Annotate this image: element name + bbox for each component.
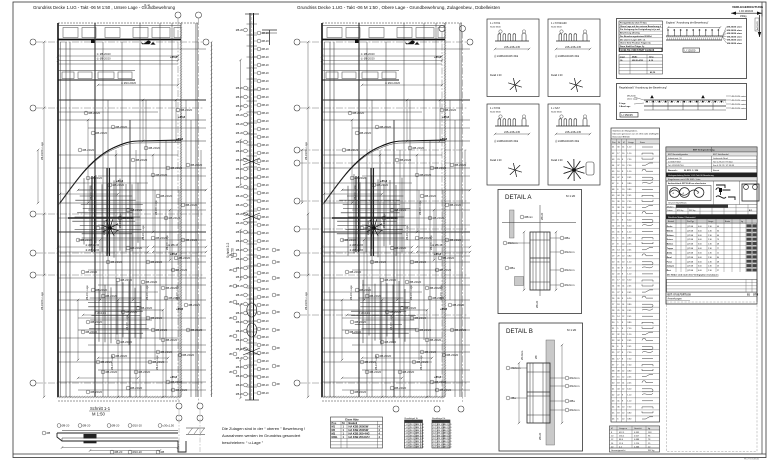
svg-text:Ø8-20/20 unten: Ø8-20/20 unten bbox=[732, 107, 747, 110]
svg-text:St: St bbox=[342, 421, 345, 425]
svg-text:06 SPG 1 / 036: 06 SPG 1 / 036 bbox=[684, 170, 699, 172]
svg-text:+85,8: +85,8 bbox=[176, 307, 184, 311]
svg-text:Ø8-20/20: Ø8-20/20 bbox=[345, 238, 357, 242]
svg-text:Ø8-20: Ø8-20 bbox=[262, 119, 270, 123]
svg-text:Ø8-20/20 u.Lage: Ø8-20/20 u.Lage bbox=[41, 291, 44, 310]
svg-text:Ø8a: Ø8a bbox=[510, 266, 516, 270]
svg-text:Ø8-20/20: Ø8-20/20 bbox=[627, 96, 637, 98]
svg-text:Länge: Länge bbox=[628, 142, 635, 144]
svg-text:Ø8-20/20: Ø8-20/20 bbox=[149, 146, 161, 150]
svg-text:Ø8-20: Ø8-20 bbox=[262, 263, 270, 267]
svg-text:Ø8-20/20: Ø8-20/20 bbox=[453, 303, 465, 307]
svg-text:Pos: Pos bbox=[332, 421, 337, 425]
svg-text:Ø8-20 1.Lage: Ø8-20 1.Lage bbox=[119, 213, 122, 228]
svg-text:Ø8-20/20: Ø8-20/20 bbox=[166, 338, 178, 342]
svg-text:1.Bew.Lage: 1.Bew.Lage bbox=[619, 106, 631, 108]
svg-text:Ø8-20/20: Ø8-20/20 bbox=[380, 125, 392, 129]
svg-text:Ø8-20/20: Ø8-20/20 bbox=[131, 246, 143, 250]
svg-text:Die Zulagen sind in der “ ober: Die Zulagen sind in der “ oberen ” Beweh… bbox=[222, 426, 305, 431]
svg-text:Ø8-20/20: Ø8-20/20 bbox=[186, 238, 198, 242]
svg-text:Q257A: Q257A bbox=[687, 229, 694, 232]
svg-text:Ø8-20: Ø8-20 bbox=[262, 383, 270, 387]
svg-text:Ø8-20: Ø8-20 bbox=[262, 215, 270, 219]
svg-text:Ø8-20: Ø8-20 bbox=[236, 104, 244, 108]
svg-text:⑦ Ø10-15: ⑦ Ø10-15 bbox=[94, 311, 106, 315]
svg-text:+85,8: +85,8 bbox=[176, 137, 184, 141]
svg-text:245+245+245: 245+245+245 bbox=[504, 130, 521, 134]
svg-text:Ø8-20: Ø8-20 bbox=[262, 127, 270, 131]
svg-text:Ø8-20/20 oben: Ø8-20/20 oben bbox=[727, 30, 743, 32]
svg-text:Ø8-20/20: Ø8-20/20 bbox=[121, 278, 133, 282]
svg-text:Ø8-20: Ø8-20 bbox=[236, 392, 244, 396]
svg-text:③ Ø10-20/20: ③ Ø10-20/20 bbox=[385, 81, 401, 85]
svg-text:Ø10-20: Ø10-20 bbox=[133, 450, 143, 454]
svg-text:Randbügel St: Randbügel St bbox=[405, 417, 419, 420]
svg-text:Ø8-20: Ø8-20 bbox=[262, 199, 270, 203]
svg-text:Ø8-20: Ø8-20 bbox=[236, 122, 244, 126]
svg-text:Ø8-20/20: Ø8-20/20 bbox=[360, 288, 372, 292]
svg-text:Ø8-20: Ø8-20 bbox=[262, 39, 270, 43]
svg-text:Ø8-20: Ø8-20 bbox=[62, 424, 70, 428]
svg-text:Ⓐ 2xØ8x100/245 4Stk: Ⓐ 2xØ8x100/245 4Stk bbox=[494, 139, 519, 143]
svg-text:Q257A: Q257A bbox=[687, 243, 694, 246]
svg-text:Ø8-20: Ø8-20 bbox=[262, 279, 270, 283]
svg-text:Ø8-20/20 u.Lage: Ø8-20/20 u.Lage bbox=[305, 141, 308, 160]
svg-text:Ø8-20: Ø8-20 bbox=[236, 149, 244, 153]
svg-text:Ø8-20: Ø8-20 bbox=[262, 79, 270, 83]
svg-text:Ø8: Ø8 bbox=[534, 355, 538, 359]
svg-text:Ø8-20/20: Ø8-20/20 bbox=[353, 111, 365, 115]
svg-text:Ø8-20 1.Lage: Ø8-20 1.Lage bbox=[166, 235, 169, 250]
svg-text:+85,8: +85,8 bbox=[178, 115, 186, 119]
svg-text:Ø8-20/20: Ø8-20/20 bbox=[455, 163, 467, 167]
svg-text:HA KSB 200-4HG: HA KSB 200-4HG bbox=[349, 431, 370, 435]
svg-text:48: 48 bbox=[717, 244, 719, 246]
svg-text:③ Ø10-20/20: ③ Ø10-20/20 bbox=[121, 81, 137, 85]
svg-text:Ø8-20/20: Ø8-20/20 bbox=[440, 388, 452, 392]
svg-text:Ø8-20: Ø8-20 bbox=[262, 63, 270, 67]
svg-text:Ø8 1.10: Ø8 1.10 bbox=[416, 433, 425, 435]
svg-text:Obere Lage auf der unteren Bew: Obere Lage auf der unteren Bewehrung d bbox=[620, 25, 662, 28]
svg-text:Pos: Pos bbox=[612, 142, 616, 144]
svg-text:M 1:20: M 1:20 bbox=[567, 328, 577, 332]
svg-text:Ø8-20: Ø8-20 bbox=[262, 223, 270, 227]
svg-text:BST Verlegeanleitung: BST Verlegeanleitung bbox=[693, 149, 715, 152]
svg-text:Wände: Wände bbox=[667, 230, 673, 232]
svg-text:Ø12mm: Ø12mm bbox=[570, 384, 581, 388]
svg-text:Ø8-20: Ø8-20 bbox=[236, 347, 244, 351]
svg-text:23: 23 bbox=[717, 266, 719, 268]
svg-text:Ø8-20/20: Ø8-20/20 bbox=[161, 350, 173, 354]
svg-text:Ø8 1.10: Ø8 1.10 bbox=[416, 427, 425, 429]
svg-text:+85,8: +85,8 bbox=[440, 137, 448, 141]
svg-text:Ø8-20/20: Ø8-20/20 bbox=[116, 354, 128, 358]
svg-text:Ø8-20/20: Ø8-20/20 bbox=[435, 166, 447, 170]
svg-text:Q257A: Q257A bbox=[687, 234, 694, 237]
svg-text:0.888: 0.888 bbox=[634, 439, 640, 441]
svg-text:Ø8-20: Ø8-20 bbox=[236, 275, 244, 279]
svg-text:Eisen Hüte: Eisen Hüte bbox=[345, 417, 359, 421]
svg-text:Ø8 1.10: Ø8 1.10 bbox=[444, 427, 453, 429]
svg-text:Q257A: Q257A bbox=[687, 265, 694, 268]
svg-text:+85,8: +85,8 bbox=[170, 252, 178, 256]
svg-text:Ø8-20 1.Lage: Ø8-20 1.Lage bbox=[146, 285, 149, 300]
svg-text:Ø8-20/20 u.Lage: Ø8-20/20 u.Lage bbox=[41, 141, 44, 160]
svg-text:Ø8: Ø8 bbox=[47, 431, 51, 435]
svg-text:Ø8-20: Ø8-20 bbox=[262, 327, 270, 331]
svg-text:Betonstahl BSt500: Betonstahl BSt500 bbox=[613, 136, 631, 139]
svg-text:Ø8-20/20 unten: Ø8-20/20 unten bbox=[732, 103, 747, 106]
svg-text:Ø8-20/20: Ø8-20/20 bbox=[395, 246, 407, 250]
svg-text:Ø8-20: Ø8-20 bbox=[540, 212, 544, 220]
svg-text:Ø8-20/20: Ø8-20/20 bbox=[403, 370, 415, 374]
svg-text:Ø8-20 1.Lage: Ø8-20 1.Lage bbox=[390, 315, 393, 330]
svg-text:Ø8-20: Ø8-20 bbox=[236, 329, 244, 333]
svg-text:Ø8-20/20 oben: Ø8-20/20 oben bbox=[727, 33, 743, 35]
svg-text:Dann Stahl bei Träger 3y: Dann Stahl bei Träger 3y bbox=[620, 45, 645, 48]
svg-text:Ø12mm: Ø12mm bbox=[565, 250, 576, 254]
svg-text:Ø8-20/20: Ø8-20/20 bbox=[121, 340, 133, 344]
svg-text:Pos/Typ: Pos/Typ bbox=[687, 221, 694, 223]
svg-text:Ø8-20: Ø8-20 bbox=[262, 351, 270, 355]
svg-text:Fax 0 29 22 / 97 33-33: Fax 0 29 22 / 97 33-33 bbox=[713, 165, 735, 167]
svg-text:Ø8-20/20: Ø8-20/20 bbox=[179, 256, 191, 260]
svg-text:Ø8-20 1.Lage: Ø8-20 1.Lage bbox=[176, 285, 179, 300]
svg-text:Ø8-20/20: Ø8-20/20 bbox=[151, 316, 163, 320]
svg-text:6.00: 6.00 bbox=[698, 226, 702, 228]
svg-text:Ø8-20/20: Ø8-20/20 bbox=[96, 288, 108, 292]
svg-text:6.00: 6.00 bbox=[698, 261, 702, 263]
svg-text:Ø8-20: Ø8-20 bbox=[236, 293, 244, 297]
svg-text:Ø8-20/20: Ø8-20/20 bbox=[440, 268, 452, 272]
svg-text:Ø8-20/20: Ø8-20/20 bbox=[370, 294, 382, 298]
svg-text:2.30: 2.30 bbox=[708, 230, 712, 232]
svg-text:Balkon: Balkon bbox=[667, 244, 674, 246]
svg-text:Ø8-20: Ø8-20 bbox=[115, 450, 123, 454]
svg-text:Bauvorh.:: Bauvorh.: bbox=[668, 169, 678, 172]
svg-text:362 kg: 362 kg bbox=[648, 450, 655, 452]
svg-text:Ø8-20/20: Ø8-20/20 bbox=[410, 280, 422, 284]
svg-text:6.00: 6.00 bbox=[698, 270, 702, 272]
svg-text:Ø8 1.10: Ø8 1.10 bbox=[444, 438, 453, 440]
svg-text:Ø8-20 1.Lage: Ø8-20 1.Lage bbox=[126, 315, 129, 330]
svg-text:LI 120/20: LI 120/20 bbox=[685, 48, 696, 52]
svg-text:Ø8a: Ø8a bbox=[565, 236, 571, 240]
svg-text:Ø8 1.10: Ø8 1.10 bbox=[444, 444, 453, 446]
svg-text:Anmerkungen: Anmerkungen bbox=[668, 298, 683, 301]
svg-text:Rest: Rest bbox=[667, 269, 671, 272]
svg-text:Ø8-20/20: Ø8-20/20 bbox=[375, 260, 387, 264]
svg-text:Länge: Länge bbox=[708, 221, 713, 223]
svg-text:Ø8-20 1.Lage: Ø8-20 1.Lage bbox=[155, 200, 158, 215]
svg-text:Ø8-20/20: Ø8-20/20 bbox=[186, 203, 198, 207]
svg-text:u30x1,50: u30x1,50 bbox=[163, 424, 175, 428]
svg-text:Ø8-20: Ø8-20 bbox=[262, 367, 270, 371]
svg-text:2.30: 2.30 bbox=[708, 244, 712, 246]
svg-text:Ø8-20/20 u.Lage: Ø8-20/20 u.Lage bbox=[305, 291, 308, 310]
svg-text:Ø8-20/20: Ø8-20/20 bbox=[146, 280, 158, 284]
svg-text:Decke: Decke bbox=[667, 226, 673, 228]
svg-text:Ø8-20: Ø8-20 bbox=[262, 87, 270, 91]
svg-text:Ø8-20: Ø8-20 bbox=[262, 359, 270, 363]
svg-text:Aufsteckkorb 2ST B 46 cm oben/: Aufsteckkorb 2ST B 46 cm oben/unten bbox=[668, 182, 707, 185]
svg-text:Ø8-20: Ø8-20 bbox=[262, 135, 270, 139]
svg-text:Ø8-20: Ø8-20 bbox=[262, 159, 270, 163]
svg-text:6.00: 6.00 bbox=[698, 266, 702, 268]
svg-text:PLOT 19.09.06: PLOT 19.09.06 bbox=[744, 459, 760, 461]
svg-text:Ø8-20: Ø8-20 bbox=[236, 113, 244, 117]
svg-text:0.395: 0.395 bbox=[634, 432, 640, 434]
svg-text:Ø8-20: Ø8-20 bbox=[236, 374, 244, 378]
svg-text:Q257A: Q257A bbox=[687, 251, 694, 254]
svg-text:Ø8-20 1.Lage: Ø8-20 1.Lage bbox=[406, 225, 409, 240]
svg-text:Lage: Lage bbox=[620, 56, 626, 58]
svg-text:HA KSB 200-K2U: HA KSB 200-K2U bbox=[349, 435, 370, 439]
svg-text:Verlegeanleitung Decke 1.UG T: Verlegeanleitung Decke 1.UG Takt 06 Bewe… bbox=[668, 174, 715, 177]
svg-text:Ø8-20: Ø8-20 bbox=[262, 271, 270, 275]
svg-text:Ø8-20 1.Lage: Ø8-20 1.Lage bbox=[410, 285, 413, 300]
svg-text:42,10: 42,10 bbox=[650, 71, 656, 74]
svg-text:Detail 1:20: Detail 1:20 bbox=[490, 159, 502, 162]
svg-text:2.30: 2.30 bbox=[708, 266, 712, 268]
svg-text:Gewicht Stahl/Stück: Gewicht Stahl/Stück bbox=[668, 201, 688, 204]
svg-text:Ø8 1.10: Ø8 1.10 bbox=[444, 441, 453, 443]
svg-text:Ø8-20/20: Ø8-20/20 bbox=[395, 386, 407, 390]
svg-text:Ø8 1.10: Ø8 1.10 bbox=[416, 444, 425, 446]
svg-text:Bauteil: Bauteil bbox=[349, 421, 358, 425]
svg-text:Gesamtgewicht: Gesamtgewicht bbox=[611, 449, 626, 452]
svg-text:Ø8 1.10: Ø8 1.10 bbox=[416, 441, 425, 443]
svg-text:Ø8-20: Ø8-20 bbox=[236, 320, 244, 324]
svg-text:Ø8-20/20: Ø8-20/20 bbox=[447, 353, 459, 357]
svg-text:Übersicht gemessen von 15 OKm: Übersicht gemessen von 15 OKm Q31 1mØ/kg… bbox=[613, 133, 659, 136]
svg-text:Ø8-20/20: Ø8-20/20 bbox=[360, 131, 372, 135]
svg-text:6.00: 6.00 bbox=[698, 248, 702, 250]
svg-text:Ø8 1.10: Ø8 1.10 bbox=[444, 433, 453, 435]
svg-text:412.5: 412.5 bbox=[619, 432, 625, 434]
svg-text:Ø8-20/20: Ø8-20/20 bbox=[191, 163, 203, 167]
svg-text:Ø8 1.10: Ø8 1.10 bbox=[416, 435, 425, 437]
svg-text:+85,8: +85,8 bbox=[434, 375, 442, 379]
svg-text:Ø8-20: Ø8-20 bbox=[262, 255, 270, 259]
svg-text:+85,8: +85,8 bbox=[170, 55, 178, 59]
svg-text:Q257A: Q257A bbox=[687, 260, 694, 263]
svg-text:obere Lage: obere Lage bbox=[627, 98, 638, 101]
svg-text:2.30: 2.30 bbox=[708, 235, 712, 237]
svg-text:Ø8-20: Ø8-20 bbox=[262, 295, 270, 299]
svg-text:77: 77 bbox=[717, 248, 719, 250]
svg-text:Ø12mm: Ø12mm bbox=[520, 351, 524, 360]
svg-text:Matten: Matten bbox=[667, 205, 674, 208]
svg-text:Ⓐ 2xØ8x100/245 4Stk: Ⓐ 2xØ8x100/245 4Stk bbox=[555, 139, 580, 143]
svg-text:Ø8-20 1.Lage: Ø8-20 1.Lage bbox=[90, 185, 93, 200]
svg-text:6.00: 6.00 bbox=[698, 235, 702, 237]
svg-text:Q257A: Q257A bbox=[687, 247, 694, 250]
svg-text:11: 11 bbox=[717, 252, 719, 254]
svg-text:Gewicht: Gewicht bbox=[634, 427, 642, 430]
svg-text:LI 350/35: LI 350/35 bbox=[622, 113, 634, 117]
svg-text:+85,8: +85,8 bbox=[380, 179, 388, 183]
svg-text:Ø8-20: Ø8-20 bbox=[236, 311, 244, 315]
svg-text:Ø8-20/20: Ø8-20/20 bbox=[385, 340, 397, 344]
svg-text:⑥ Ø8-15: ⑥ Ø8-15 bbox=[432, 243, 443, 247]
svg-text:Ø8-20/20: Ø8-20/20 bbox=[139, 370, 151, 374]
svg-text:Ø8-20: Ø8-20 bbox=[262, 247, 270, 251]
svg-text:Randbügel St: Randbügel St bbox=[432, 417, 446, 420]
svg-text:Ø8-20: Ø8-20 bbox=[236, 248, 244, 252]
svg-text:Ø8-20: Ø8-20 bbox=[236, 212, 244, 216]
svg-text:Stahl S500: Stahl S500 bbox=[551, 26, 562, 29]
svg-text:Ø8-20/20: Ø8-20/20 bbox=[191, 328, 203, 332]
svg-text:Ø8-20: Ø8-20 bbox=[236, 257, 244, 261]
svg-text:+85,8: +85,8 bbox=[116, 179, 124, 183]
svg-text:+85,8: +85,8 bbox=[442, 115, 450, 119]
svg-text:Zulagen: Zulagen bbox=[667, 266, 675, 268]
svg-text:Ø8-20: Ø8-20 bbox=[262, 55, 270, 59]
svg-text:1 x 6A7: 1 x 6A7 bbox=[551, 106, 560, 110]
svg-text:Für Verlegung der Fertigteilun: Für Verlegung der Fertigteilung ist ja a… bbox=[620, 28, 660, 31]
svg-text:Ø8-20: Ø8-20 bbox=[262, 239, 270, 243]
svg-text:Ø8-20/20: Ø8-20/20 bbox=[156, 328, 168, 332]
svg-text:Ø8a: Ø8a bbox=[570, 399, 576, 403]
svg-text:Ø8-20/20: Ø8-20/20 bbox=[189, 303, 201, 307]
svg-text:Ø8-20/20: Ø8-20/20 bbox=[183, 353, 195, 357]
svg-text:M 1:50: M 1:50 bbox=[92, 412, 105, 417]
svg-text:Ø8-20: Ø8-20 bbox=[236, 365, 244, 369]
svg-text:Schnitt 1-1: Schnitt 1-1 bbox=[90, 406, 111, 411]
svg-text:BST: 07.05.FORTU.05: BST: 07.05.FORTU.05 bbox=[668, 294, 692, 296]
svg-text:Stahlliste der Mängelübers.: Stahlliste der Mängelübers. bbox=[613, 130, 639, 133]
svg-text:Ø8-20: Ø8-20 bbox=[236, 356, 244, 360]
svg-text:Ø8-20/20: Ø8-20/20 bbox=[420, 173, 432, 177]
svg-text:Ø8-20/20: Ø8-20/20 bbox=[169, 216, 181, 220]
svg-text:156.2: 156.2 bbox=[619, 436, 625, 438]
svg-text:Ø8-20 1.Lage: Ø8-20 1.Lage bbox=[367, 220, 370, 235]
svg-text:② Ø8-20/20: ② Ø8-20/20 bbox=[97, 57, 111, 61]
svg-text:Ø8-20/20: Ø8-20/20 bbox=[131, 386, 143, 390]
svg-text:Ø8-20: Ø8-20 bbox=[262, 391, 270, 395]
svg-text:Q257A: Q257A bbox=[687, 256, 694, 259]
svg-text:Ø8-20/20: Ø8-20/20 bbox=[415, 260, 427, 264]
svg-text:BST Baustahlgewebe: BST Baustahlgewebe bbox=[668, 153, 689, 156]
svg-text:Ø8-20/20: Ø8-20/20 bbox=[425, 194, 437, 198]
svg-text:46: 46 bbox=[717, 226, 719, 228]
svg-text:Ø8-20/20: Ø8-20/20 bbox=[86, 270, 98, 274]
svg-text:Ø8-20/20: Ø8-20/20 bbox=[347, 148, 359, 152]
svg-text:Ø8-20 1.Lage: Ø8-20 1.Lage bbox=[420, 355, 423, 370]
svg-text:Ø8-20/20: Ø8-20/20 bbox=[181, 108, 193, 112]
svg-text:1 x 6Y01: 1 x 6Y01 bbox=[490, 21, 501, 25]
svg-text:Bauort: Bauort bbox=[713, 169, 720, 172]
svg-text:Ø8-20/20: Ø8-20/20 bbox=[380, 354, 392, 358]
svg-text:Ø8-20+Ø10: Ø8-20+Ø10 bbox=[632, 60, 644, 62]
svg-text:Ø8-20/20: Ø8-20/20 bbox=[156, 173, 168, 177]
svg-text:Ø8-20: Ø8-20 bbox=[262, 183, 270, 187]
svg-text:Ø8-20: Ø8-20 bbox=[236, 338, 244, 342]
svg-text:27: 27 bbox=[717, 270, 719, 272]
svg-text:Ⓐ 2xØ8x100/245 4Stk: Ⓐ 2xØ8x100/245 4Stk bbox=[494, 54, 519, 58]
svg-text:Ø8-20/20: Ø8-20/20 bbox=[425, 350, 437, 354]
svg-text:1 x 6Y02: 1 x 6Y02 bbox=[490, 106, 501, 110]
svg-text:Ø8-20/20 oben: Ø8-20/20 oben bbox=[727, 36, 743, 38]
svg-text:Ø8-20/20: Ø8-20/20 bbox=[443, 256, 455, 260]
svg-text:Ø8-20: Ø8-20 bbox=[236, 176, 244, 180]
svg-text:2.Lage: 2.Lage bbox=[619, 103, 626, 105]
svg-text:Ø8 1.10: Ø8 1.10 bbox=[416, 447, 425, 449]
svg-text:⑦ Ø10-15: ⑦ Ø10-15 bbox=[358, 311, 370, 315]
svg-text:BST Stahlhandel: BST Stahlhandel bbox=[713, 153, 729, 156]
svg-text:Ø8-20/20: Ø8-20/20 bbox=[450, 238, 462, 242]
svg-text:Ⓐ 2xØ8x100/245 4Stk: Ⓐ 2xØ8x100/245 4Stk bbox=[555, 54, 580, 58]
svg-text:Ø8-20: Ø8-20 bbox=[83, 424, 91, 428]
svg-text:48: 48 bbox=[717, 261, 719, 263]
svg-text:Ø8-20/20: Ø8-20/20 bbox=[151, 260, 163, 264]
svg-text:Ø8-20/20: Ø8-20/20 bbox=[176, 268, 188, 272]
svg-text:Ø8-20: Ø8-20 bbox=[262, 335, 270, 339]
svg-text:Stahl S500: Stahl S500 bbox=[490, 111, 501, 114]
svg-text:Ø8-20: Ø8-20 bbox=[112, 424, 120, 428]
svg-text:Ø8-20: Ø8-20 bbox=[236, 221, 244, 225]
svg-text:Ø8-20: Ø8-20 bbox=[236, 167, 244, 171]
svg-text:VERLEGERICHTUNG: VERLEGERICHTUNG bbox=[732, 5, 764, 9]
svg-text:Ø8-20 1.Lage: Ø8-20 1.Lage bbox=[350, 285, 353, 300]
svg-text:Ø8-20/20: Ø8-20/20 bbox=[161, 194, 173, 198]
svg-text:Gew.: Gew. bbox=[649, 56, 654, 58]
svg-text:Ø8-20/20: Ø8-20/20 bbox=[400, 158, 412, 162]
svg-text:Form: Form bbox=[640, 141, 645, 144]
svg-text:Ø8 1.10: Ø8 1.10 bbox=[444, 435, 453, 437]
svg-text:+85,8: +85,8 bbox=[440, 307, 448, 311]
svg-text:Ø8-20: Ø8-20 bbox=[262, 47, 270, 51]
svg-text:① Ø8-20/20: ① Ø8-20/20 bbox=[361, 52, 375, 56]
svg-text:2.30: 2.30 bbox=[708, 270, 712, 272]
svg-text:Ø8-20/20: Ø8-20/20 bbox=[435, 380, 447, 384]
svg-text:Ø8-20/20 oben: Ø8-20/20 oben bbox=[727, 27, 743, 29]
svg-text:Ø8-20 1.Lage: Ø8-20 1.Lage bbox=[354, 185, 357, 200]
svg-text:Ø12mm: Ø12mm bbox=[570, 408, 581, 412]
svg-text:362 kg: 362 kg bbox=[689, 210, 696, 212]
svg-text:30: 30 bbox=[717, 230, 719, 232]
svg-text:Stahl S500: Stahl S500 bbox=[490, 26, 501, 29]
svg-text:Ø12mm: Ø12mm bbox=[565, 283, 576, 287]
svg-text:Grundriss Decke 1.UG - Takt -0: Grundriss Decke 1.UG - Takt -06 M 1:50 ,… bbox=[33, 5, 175, 10]
svg-text:245+245+245: 245+245+245 bbox=[504, 45, 521, 49]
svg-text:Industriestr. 10: Industriestr. 10 bbox=[668, 157, 682, 160]
svg-text:Grundriss Decke 1.UG - Takt -0: Grundriss Decke 1.UG - Takt -06 M 1:50 ,… bbox=[297, 5, 500, 10]
svg-text:Stützen: Stützen bbox=[667, 234, 675, 237]
svg-text:Ø8-20: Ø8-20 bbox=[262, 103, 270, 107]
svg-text:Ø8-20/20: Ø8-20/20 bbox=[350, 270, 362, 274]
svg-text:Ø8-20: Ø8-20 bbox=[262, 287, 270, 291]
svg-text:Ø12mm: Ø12mm bbox=[565, 268, 576, 272]
svg-text:2.30: 2.30 bbox=[708, 248, 712, 250]
svg-text:Attika: Attika bbox=[667, 251, 673, 254]
svg-text:Detail 1:20: Detail 1:20 bbox=[551, 159, 563, 162]
svg-text:Länge m: Länge m bbox=[619, 428, 627, 430]
svg-text:Q257A: Q257A bbox=[687, 225, 694, 228]
svg-text:Ø8-20/20: Ø8-20/20 bbox=[89, 111, 101, 115]
svg-text:6.00: 6.00 bbox=[698, 230, 702, 232]
svg-text:Ø8-20: Ø8-20 bbox=[262, 143, 270, 147]
svg-text:Der Bewehrungsabstand 20/20d: Der Bewehrungsabstand 20/20d bbox=[620, 35, 652, 38]
svg-text:245+245+245: 245+245+245 bbox=[565, 130, 582, 134]
svg-text:Ø8-20: Ø8-20 bbox=[262, 311, 270, 315]
svg-text:M 1:20: M 1:20 bbox=[566, 194, 576, 198]
svg-text:Ø8-20/20: Ø8-20/20 bbox=[106, 294, 118, 298]
svg-text:Ø8-20: Ø8-20 bbox=[262, 207, 270, 211]
svg-text:Ø8-20: Ø8-20 bbox=[236, 28, 244, 32]
svg-text:245+245+245: 245+245+245 bbox=[565, 45, 582, 49]
